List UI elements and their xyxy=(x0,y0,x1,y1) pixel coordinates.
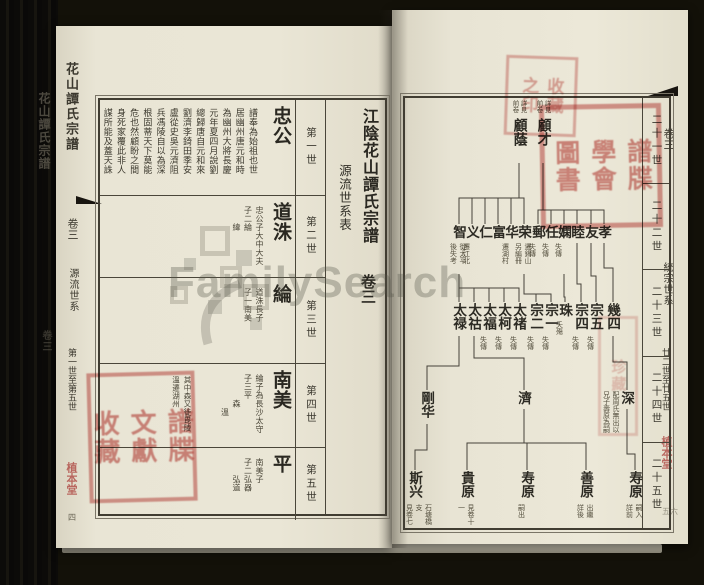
tree-line xyxy=(427,336,459,390)
person-note-extra: 其中森又徙毘陵 溫遷湖州 xyxy=(170,376,193,432)
person-name: 太祜 xyxy=(466,303,481,330)
person-name: 忠公 xyxy=(270,106,291,146)
book-photo: 花山譚氏宗譜 卷三 花山譚氏宗譜 卷三 源流世系 第一世至第五世 植本堂 四 卷… xyxy=(0,0,704,585)
generation-label: 第五世 xyxy=(303,464,318,505)
row-content: 綸道洙長子 子一南美 xyxy=(100,278,295,363)
person-name: 顧才 xyxy=(535,118,551,146)
page-title: 江陰花山譚氏宗譜 xyxy=(356,108,380,244)
person-annotation: 夭殤 xyxy=(554,321,564,335)
tree-line xyxy=(604,243,613,302)
tree-line xyxy=(543,163,551,224)
person-name: 寿原 xyxy=(519,471,534,498)
person-annotation: 失傳 xyxy=(508,336,518,350)
generation-label: 二十五世 xyxy=(649,458,664,512)
person-name: 太福 xyxy=(481,303,496,330)
person-name: 南美 xyxy=(270,370,291,410)
person-name: 濟 xyxy=(516,391,531,405)
tree-line xyxy=(524,274,536,302)
person-name: 宗五 xyxy=(588,303,603,330)
generation-label-cell: 第五世 xyxy=(295,448,325,520)
left-edge-range: 第一世至第五世 xyxy=(66,348,79,411)
person-name: 寿原 xyxy=(627,471,642,498)
person-biography: 譜奉為始祖也世 居幽州唐元和時 為幽州大將長慶 元年夏四月說劉 總歸唐自元和來 … xyxy=(101,108,259,175)
tree-line xyxy=(564,274,565,302)
left-edge-hall-seal: 植本堂 xyxy=(63,462,79,495)
person-annotation: 配周氏無出以 兄子壽原為嗣 xyxy=(601,391,620,433)
tree-line xyxy=(543,163,591,224)
person-annotation: 見卷十一 xyxy=(456,504,475,528)
tree-line xyxy=(467,409,524,470)
generation-row: 道洙忠公子大中大夫 子二綸 緯第二世 xyxy=(100,196,325,278)
generation-label: 第二世 xyxy=(303,216,318,257)
generation-label: 二十三世 xyxy=(649,286,664,340)
person-name: 顧蔭 xyxy=(511,118,527,146)
generation-label-cell: 第二世 xyxy=(295,196,325,277)
tree-line xyxy=(538,163,543,224)
generation-label-cell: 第一世 xyxy=(295,100,325,195)
left-folio: 四 xyxy=(68,512,76,523)
person-annotation: 失傳 xyxy=(540,336,550,350)
row-content: 忠公譜奉為始祖也世 居幽州唐元和時 為幽州大將長慶 元年夏四月說劉 總歸唐自元和… xyxy=(100,100,295,195)
row-content: 南美綸子為長沙太守 子三平 森 溫其中森又徙毘陵 溫遷湖州 xyxy=(100,364,295,447)
right-sheet-frame: 顧蔭詳見 前卷顧才詳見 前卷智徙太平 後失考义遷江北仁富华遷湖村荣遷錫山 另編冊… xyxy=(400,93,674,533)
person-name: 孝 xyxy=(596,225,611,239)
person-annotation: 失傳 xyxy=(478,336,488,350)
person-name: 珠 xyxy=(557,303,572,317)
person-annotation: 石塘橋支 見卷七 xyxy=(404,504,433,528)
person-name: 睦 xyxy=(569,225,584,239)
person-name: 剛华 xyxy=(419,391,434,418)
tree-line xyxy=(472,163,519,224)
person-name: 貴原 xyxy=(459,471,474,498)
tree-line xyxy=(511,163,519,224)
tree-line xyxy=(613,336,627,390)
spine-volume: 卷三 xyxy=(38,330,53,352)
person-annotation: 失傳 xyxy=(553,243,563,257)
tree-line xyxy=(459,163,519,224)
person-annotation: 遷江北 xyxy=(461,243,471,264)
person-annotation: 出繼 詳後 xyxy=(575,504,594,518)
person-name: 深 xyxy=(619,391,634,405)
generation-label-cell: 第三世 xyxy=(295,278,325,363)
person-annotation: 遷湖村 xyxy=(500,243,510,264)
person-name: 太禄 xyxy=(451,303,466,330)
person-annotation: 詳見 前卷 xyxy=(534,100,550,113)
book-spine xyxy=(0,0,58,585)
tree-line xyxy=(498,163,519,224)
tree-line xyxy=(519,163,524,224)
lineage-tree: 顧蔭詳見 前卷顧才詳見 前卷智徙太平 後失考义遷江北仁富华遷湖村荣遷錫山 另編冊… xyxy=(405,98,642,528)
left-edge-book-title: 花山譚氏宗譜 xyxy=(62,62,81,152)
tree-line xyxy=(591,243,596,302)
generation-label: 二十二世 xyxy=(649,200,664,254)
person-annotation: 失傳 xyxy=(525,336,535,350)
generation-row: 忠公譜奉為始祖也世 居幽州唐元和時 為幽州大將長慶 元年夏四月說劉 總歸唐自元和… xyxy=(100,100,325,196)
person-name: 善原 xyxy=(578,471,593,498)
person-annotation: 詳見 前卷 xyxy=(510,100,526,113)
person-name: 宗二 xyxy=(528,303,543,330)
tree-line xyxy=(543,163,577,224)
left-title-column: 江陰花山譚氏宗譜 源流世系表 卷三 xyxy=(325,100,385,514)
left-edge-volume: 卷三 xyxy=(64,218,80,240)
person-name: 太柯 xyxy=(496,303,511,330)
spine-title: 花山譚氏宗譜 xyxy=(36,92,53,170)
left-sheet-frame: 忠公譜奉為始祖也世 居幽州唐元和時 為幽州大將長慶 元年夏四月說劉 總歸唐自元和… xyxy=(95,95,390,519)
tree-line xyxy=(485,163,519,224)
person-name: 宗四 xyxy=(573,303,588,330)
page-volume: 卷三 xyxy=(357,274,378,304)
person-note: 道洙長子 子一南美 xyxy=(242,288,265,322)
left-generation-rows: 忠公譜奉為始祖也世 居幽州唐元和時 為幽州大將長慶 元年夏四月說劉 總歸唐自元和… xyxy=(100,100,325,514)
person-note: 綸子為長沙太守 子三平 森 溫 xyxy=(219,374,265,434)
person-name: 太禇 xyxy=(511,303,526,330)
tree-line xyxy=(524,409,586,470)
page-subtitle: 源流世系表 xyxy=(335,164,354,232)
person-name: 平 xyxy=(270,454,291,474)
person-name: 道洙 xyxy=(270,202,291,242)
person-annotation: 嗣出 xyxy=(516,504,526,518)
tree-line xyxy=(524,274,551,302)
generation-row: 綸道洙長子 子一南美第三世 xyxy=(100,278,325,364)
person-annotation: 失傳 xyxy=(493,336,503,350)
person-annotation: 失傳 xyxy=(570,336,580,350)
generation-label-cell: 第四世 xyxy=(295,364,325,447)
generation-row: 平南美子 子二弘器 弘道第五世 xyxy=(100,448,325,520)
person-name: 荣 xyxy=(516,225,531,239)
person-note: 南美子 子二弘器 弘道 xyxy=(231,458,266,492)
generation-label: 第三世 xyxy=(303,300,318,341)
generation-label: 第四世 xyxy=(303,385,318,426)
person-annotation: 失傳 xyxy=(527,243,537,257)
person-name: 幾四 xyxy=(605,303,620,330)
row-content: 平南美子 子二弘器 弘道 xyxy=(100,448,295,520)
tree-line xyxy=(627,409,635,470)
generation-label: 二十四世 xyxy=(649,372,664,426)
tree-line xyxy=(543,163,564,224)
left-edge-section: 源流世系 xyxy=(65,268,80,312)
tree-line xyxy=(415,424,427,470)
tree-line xyxy=(543,163,604,224)
person-annotation: 失傳 xyxy=(585,336,595,350)
person-note: 忠公子大中大夫 子二綸 緯 xyxy=(231,206,266,266)
generation-label: 第一世 xyxy=(303,127,318,168)
row-content: 道洙忠公子大中大夫 子二綸 緯 xyxy=(100,196,295,277)
generation-row: 南美綸子為長沙太守 子三平 森 溫其中森又徙毘陵 溫遷湖州第四世 xyxy=(100,364,325,448)
person-name: 綸 xyxy=(270,284,291,304)
person-annotation: 嗣入 詳前 xyxy=(624,504,643,518)
tree-line xyxy=(577,243,581,302)
generation-label: 二十一世 xyxy=(649,114,664,168)
person-annotation: 失傳 xyxy=(540,243,550,257)
person-name: 斯兴 xyxy=(407,471,422,498)
